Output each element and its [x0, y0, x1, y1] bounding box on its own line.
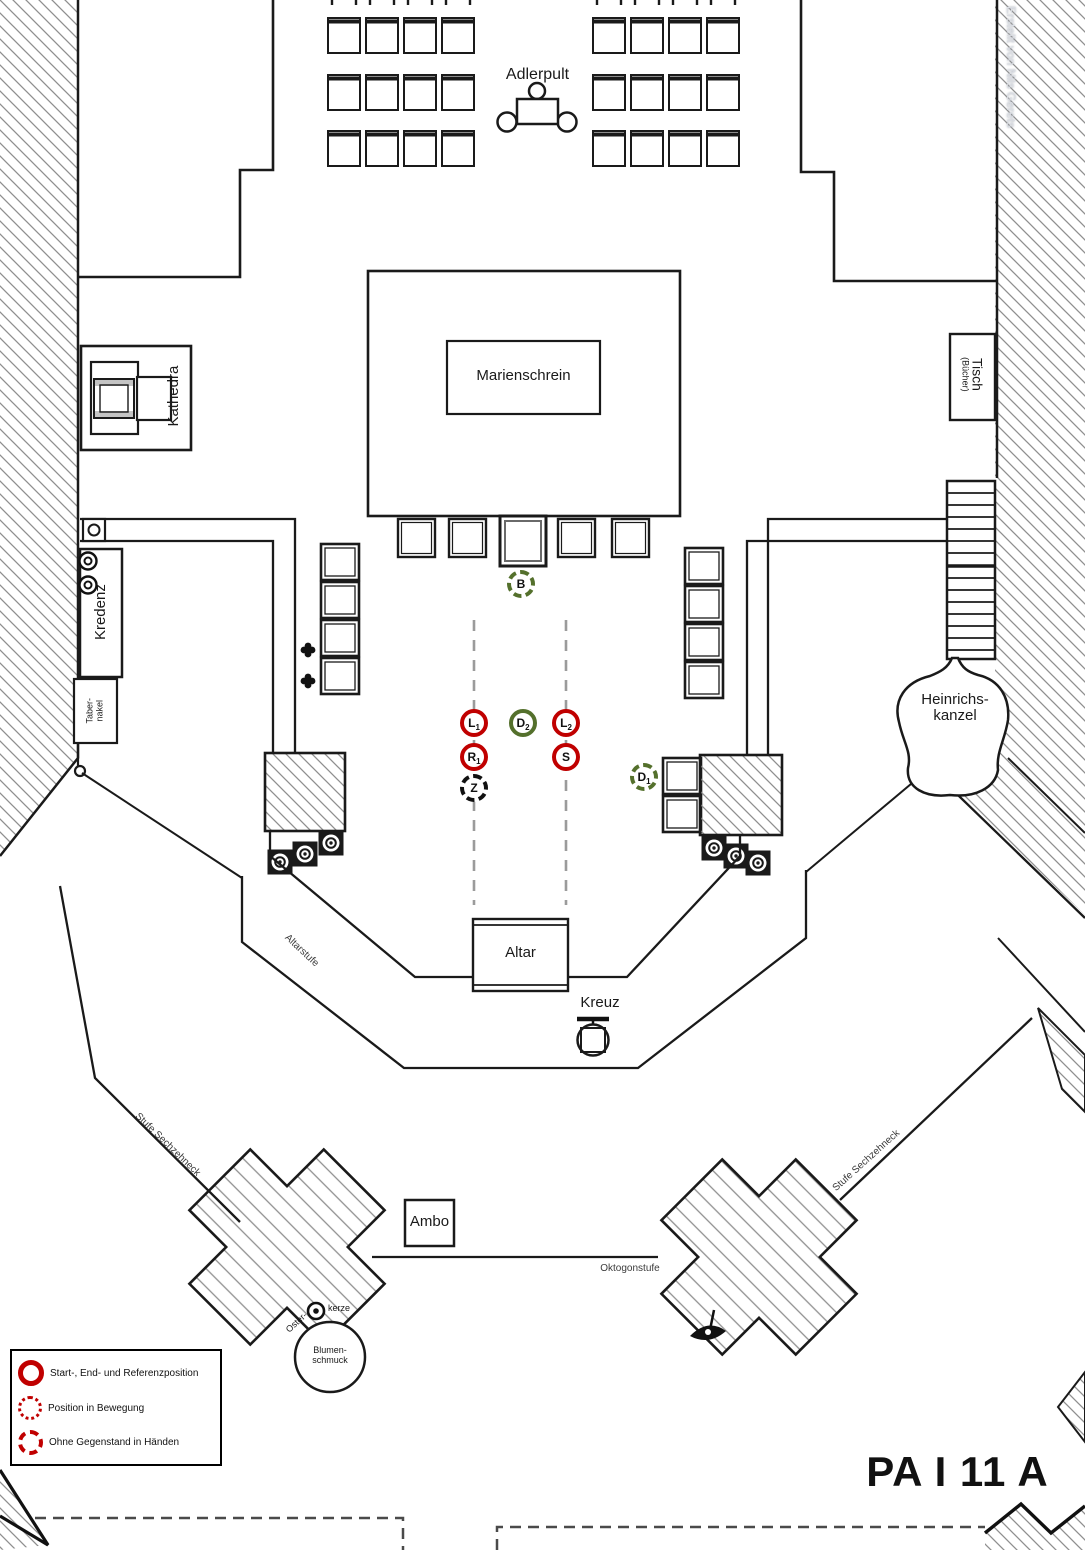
- shrine-stands: [398, 516, 649, 566]
- legend: Start-, End- und Referenzposition Positi…: [10, 1349, 222, 1466]
- tisch-label: Tisch (Bücher): [960, 329, 985, 419]
- position-marker-L1: L1: [460, 709, 488, 737]
- position-marker-L2: L2: [552, 709, 580, 737]
- oktogonstufe-label: Oktogonstufe: [588, 1264, 672, 1275]
- nave-wall-right: [801, 0, 997, 281]
- position-marker-B: B: [507, 570, 535, 598]
- osterkerze-label-2: kerze: [328, 1304, 368, 1314]
- position-marker-D2: D2: [509, 709, 537, 737]
- adlerpult-icon: [498, 83, 577, 132]
- dashed-outline-right: [497, 1527, 985, 1550]
- kredenz-label: Kredenz: [93, 562, 109, 662]
- position-marker-R1: R1: [460, 743, 488, 771]
- pillar-southwest: [153, 1113, 422, 1382]
- wall-west-left: [0, 0, 78, 856]
- kreuz-icon: [577, 1019, 609, 1056]
- pillar-southeast: [625, 1123, 894, 1392]
- plan-linework: [0, 0, 1085, 1550]
- marienschrein-label: Marienschrein: [447, 368, 600, 384]
- legend-item-empty-hands: Ohne Gegenstand in Händen: [18, 1430, 220, 1455]
- legend-dashed-circle-icon: [18, 1430, 43, 1455]
- kreuz-label: Kreuz: [565, 995, 635, 1011]
- position-marker-Z: Z: [460, 774, 488, 802]
- pillar-right: [700, 755, 782, 835]
- spiral-stairs: [947, 481, 995, 659]
- blumenschmuck-label: Blumen- schmuck: [294, 1346, 366, 1365]
- credit-text: Erstellt von Nils Gerets: [1004, 6, 1018, 156]
- legend-item-moving: Position in Bewegung: [18, 1396, 220, 1420]
- legend-solid-circle-icon: [18, 1360, 44, 1386]
- chair-column-left: [301, 544, 359, 694]
- sechzehneck-step-left: [60, 886, 240, 1222]
- wall-fragment-right-low: [1058, 1372, 1085, 1442]
- sechzehneck-step-right: [840, 1018, 1032, 1200]
- dashed-outline-left: [35, 1518, 403, 1550]
- altar-label: Altar: [473, 945, 568, 961]
- chair-block-top-left: [328, 18, 474, 166]
- plan-title: PA I 11 A: [855, 1448, 1060, 1496]
- step-connectors: [82, 768, 930, 878]
- legend-dotted-circle-icon: [18, 1396, 42, 1420]
- position-marker-S: S: [552, 743, 580, 771]
- heinrichskanzel-label: Heinrichs- kanzel: [903, 692, 1007, 724]
- cutoff-chair-ticks: [332, 0, 735, 5]
- position-marker-D1: D1: [630, 763, 658, 791]
- floor-plan: Adlerpult Marienschrein Kathedra Tisch (…: [0, 0, 1085, 1550]
- candlesticks: [268, 831, 771, 876]
- heinrichskanzel-shape: [897, 658, 1008, 796]
- pillar-corner-southeast: [985, 1504, 1085, 1550]
- chair-block-top-right: [593, 18, 739, 166]
- legend-item-reference: Start-, End- und Referenzposition: [18, 1360, 220, 1386]
- nave-wall-left: [78, 0, 273, 277]
- ambo-label: Ambo: [405, 1214, 454, 1230]
- adlerpult-label: Adlerpult: [475, 66, 600, 83]
- tabernakel-label: Taber- nakel: [85, 681, 104, 741]
- pillar-left: [265, 753, 345, 831]
- kathedra-label: Kathedra: [166, 354, 182, 438]
